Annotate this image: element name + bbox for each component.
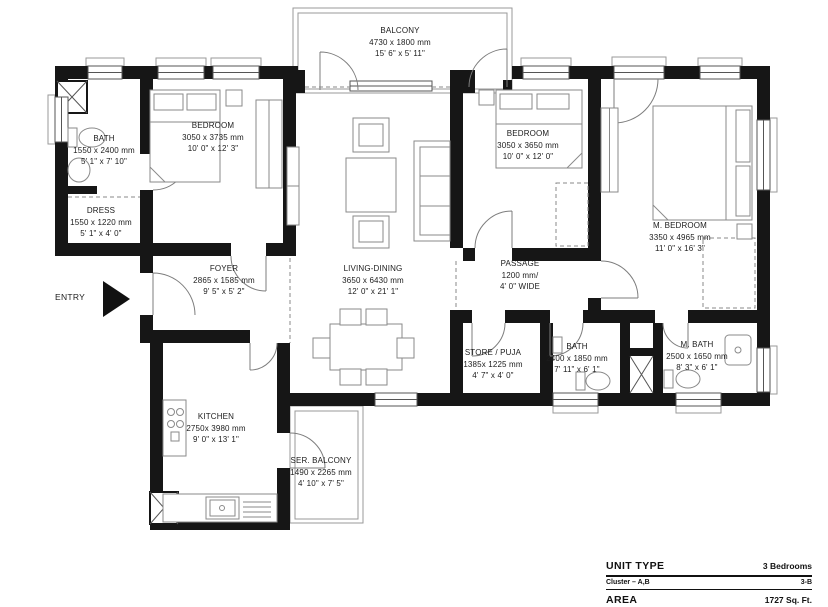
floorplan-page: BALCONY 4730 x 1800 mm 15' 6" x 5' 11" B… — [0, 0, 828, 607]
room-dim-ft: 10' 0" x 12' 3" — [182, 143, 244, 155]
room-name: M. BEDROOM — [649, 220, 711, 232]
side-table-icon — [479, 90, 494, 105]
window-swing-icon — [614, 79, 658, 123]
room-dim-mm: 1490 x 2265 mm — [290, 467, 352, 479]
room-dim-mm: 3650 x 6430 mm — [342, 275, 404, 287]
dining-chair-icon — [313, 338, 330, 358]
window-icon — [158, 66, 204, 79]
room-dim-ft: 4' 7" x 4' 0" — [463, 370, 522, 382]
room-dim-mm: 2750x 3980 mm — [186, 423, 245, 435]
room-label-store-puja: STORE / PUJA 1385x 1225 mm 4' 7" x 4' 0" — [463, 347, 522, 382]
door-swing-icon — [601, 261, 638, 298]
tv-unit-icon — [287, 147, 299, 225]
room-label-living-dining: LIVING-DINING 3650 x 6430 mm 12' 0" x 21… — [342, 263, 404, 298]
room-name: BATH — [546, 341, 608, 353]
room-label-dress: DRESS 1550 x 1220 mm 5' 1" x 4' 0" — [70, 205, 132, 240]
unit-type-value: 3 Bedrooms — [763, 561, 812, 571]
unit-legend: UNIT TYPE 3 Bedrooms Cluster – A,B 3-B A… — [606, 560, 812, 606]
wardrobe-icon — [256, 100, 282, 188]
sofa-icon — [414, 141, 450, 241]
room-name: BEDROOM — [182, 120, 244, 132]
side-table-icon — [737, 224, 752, 239]
room-dim-ft: 9' 0" x 13' 1" — [186, 434, 245, 446]
bed-icon — [653, 106, 752, 220]
wardrobe-icon — [601, 108, 618, 192]
room-dim-ft: 5' 1" x 7' 10" — [73, 156, 135, 168]
dining-table-icon — [330, 324, 402, 370]
room-dim-ft: 5' 1" x 4' 0" — [70, 228, 132, 240]
room-dim-ft: 15' 6" x 5' 11" — [369, 48, 431, 60]
room-dim-ft: 4' 10" x 7' 5" — [290, 478, 352, 490]
room-dim-mm: 3050 x 3650 mm — [497, 140, 559, 152]
furniture-layer — [68, 90, 752, 522]
room-dim-ft: 9' 5" x 5' 2" — [193, 286, 255, 298]
room-dim-ft: 10' 0" x 12' 0" — [497, 151, 559, 163]
floorplan-drawing — [0, 0, 828, 607]
entry-label: ENTRY — [55, 292, 85, 302]
room-dim-ft: 8' 3" x 6' 1" — [666, 362, 728, 374]
room-dim-mm: 2865 x 1585 mm — [193, 275, 255, 287]
entry-arrow-icon — [103, 281, 130, 317]
room-label-ser-balcony: SER. BALCONY 1490 x 2265 mm 4' 10" x 7' … — [290, 455, 352, 490]
room-name: FOYER — [193, 263, 255, 275]
room-name: BALCONY — [369, 25, 431, 37]
room-label-kitchen: KITCHEN 2750x 3980 mm 9' 0" x 13' 1" — [186, 411, 245, 446]
room-name: KITCHEN — [186, 411, 245, 423]
room-label-balcony: BALCONY 4730 x 1800 mm 15' 6" x 5' 11" — [369, 25, 431, 60]
room-dim-mm: 3350 x 4965 mm — [649, 232, 711, 244]
window-icon — [757, 120, 770, 190]
room-label-foyer: FOYER 2865 x 1585 mm 9' 5" x 5' 2" — [193, 263, 255, 298]
room-name: DRESS — [70, 205, 132, 217]
room-name: BEDROOM — [497, 128, 559, 140]
room-dim-ft: 4' 0" WIDE — [500, 281, 540, 293]
room-dim-ft: 11' 0" x 16' 3" — [649, 243, 711, 255]
unit-type-label: UNIT TYPE — [606, 560, 664, 572]
window-icon — [375, 393, 417, 406]
door-swing-icon — [250, 343, 277, 370]
vanity-icon — [725, 335, 751, 365]
kitchen-sink-icon — [163, 494, 277, 522]
door-swing-icon — [153, 273, 195, 315]
room-dim-ft: 12' 0" x 21' 1" — [342, 286, 404, 298]
cluster-label: Cluster – A,B — [606, 579, 650, 586]
dining-chair-icon — [397, 338, 414, 358]
room-dim-mm: 1550 x 1220 mm — [70, 217, 132, 229]
coffee-table-icon — [346, 158, 396, 212]
room-label-passage: PASSAGE 1200 mm/ 4' 0" WIDE — [500, 258, 540, 293]
window-icon — [213, 66, 259, 79]
window-icon — [553, 393, 598, 406]
window-icon — [55, 97, 68, 142]
room-name: PASSAGE — [500, 258, 540, 270]
room-label-m-bedroom: M. BEDROOM 3350 x 4965 mm 11' 0" x 16' 3… — [649, 220, 711, 255]
window-icon — [676, 393, 721, 406]
room-name: SER. BALCONY — [290, 455, 352, 467]
room-name: M. BATH — [666, 339, 728, 351]
dining-chair-icon — [340, 309, 361, 325]
room-label-bedroom-left: BEDROOM 3050 x 3735 mm 10' 0" x 12' 3" — [182, 120, 244, 155]
room-name: BATH — [73, 133, 135, 145]
room-name: STORE / PUJA — [463, 347, 522, 359]
room-dim-mm: 2500 x 1650 mm — [666, 351, 728, 363]
area-label: AREA — [606, 594, 637, 606]
area-row: AREA 1727 Sq. Ft. — [606, 590, 812, 606]
room-dim-mm: 1385x 1225 mm — [463, 359, 522, 371]
room-label-bedroom-mid: BEDROOM 3050 x 3650 mm 10' 0" x 12' 0" — [497, 128, 559, 163]
unit-type-row: UNIT TYPE 3 Bedrooms — [606, 560, 812, 577]
room-label-m-bath: M. BATH 2500 x 1650 mm 8' 3" x 6' 1" — [666, 339, 728, 374]
window-icon — [614, 66, 664, 79]
door-swing-icon — [475, 211, 512, 248]
dining-chair-icon — [366, 369, 387, 385]
dining-chair-icon — [366, 309, 387, 325]
window-icon — [757, 348, 770, 392]
shaft-icon — [630, 356, 653, 393]
window-icon — [700, 66, 740, 79]
area-value: 1727 Sq. Ft. — [765, 595, 812, 605]
window-icon — [88, 66, 122, 79]
window-icon — [523, 66, 569, 79]
dining-chair-icon — [340, 369, 361, 385]
hob-icon — [163, 400, 186, 456]
armchair-icon — [353, 216, 389, 248]
room-label-bath-top: BATH 1550 x 2400 mm 5' 1" x 7' 10" — [73, 133, 135, 168]
room-dim-mm: 3050 x 3735 mm — [182, 132, 244, 144]
room-dim-mm: 4730 x 1800 mm — [369, 37, 431, 49]
room-label-bath-mid: BATH 2400 x 1850 mm 7' 11" x 6' 1" — [546, 341, 608, 376]
room-dim-mm: 1200 mm/ — [500, 270, 540, 282]
room-dim-mm: 1550 x 2400 mm — [73, 145, 135, 157]
armchair-icon — [353, 118, 389, 152]
cluster-value: 3-B — [801, 579, 812, 586]
room-name: LIVING-DINING — [342, 263, 404, 275]
sliding-door-icon — [350, 81, 432, 91]
room-dim-mm: 2400 x 1850 mm — [546, 353, 608, 365]
room-dim-ft: 7' 11" x 6' 1" — [546, 364, 608, 376]
cluster-row: Cluster – A,B 3-B — [606, 577, 812, 590]
side-table-icon — [226, 90, 242, 106]
